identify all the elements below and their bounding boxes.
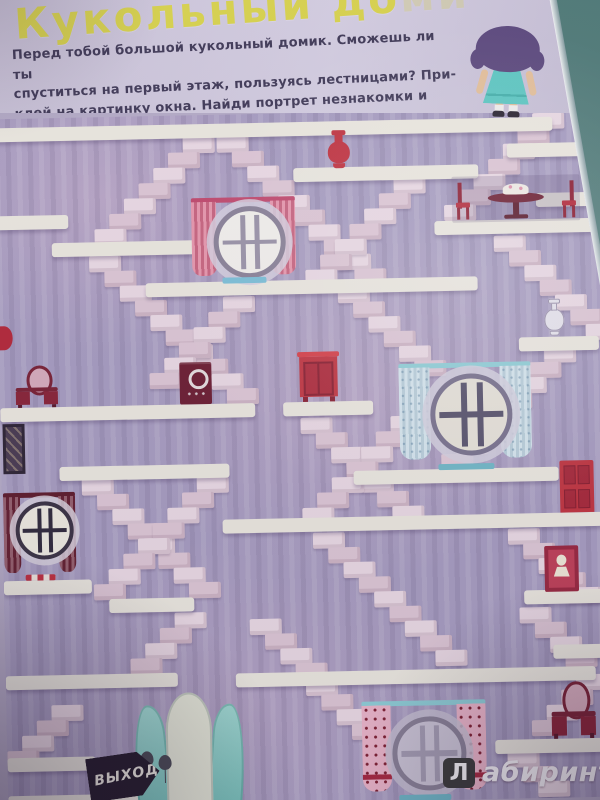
- staircase-step: [317, 492, 349, 509]
- wardrobe-cornice: [297, 351, 339, 357]
- staircase-step: [153, 523, 185, 540]
- exit-door-leaf-right: [208, 703, 249, 800]
- window-sill: [26, 574, 56, 581]
- staircase-step: [349, 223, 381, 240]
- vase-foot: [333, 163, 345, 168]
- staircase-step: [51, 705, 83, 722]
- vanity-drawer-left: [16, 392, 30, 406]
- floor: [283, 401, 373, 417]
- floor: [109, 597, 194, 613]
- vanity-foot-left: [554, 734, 558, 739]
- watermark-logo-badge: Л: [443, 758, 475, 788]
- staircase-step: [335, 239, 367, 256]
- red-door: [559, 460, 594, 513]
- floor: [7, 756, 95, 772]
- chair-leg: [563, 205, 566, 217]
- window-sill: [223, 277, 266, 284]
- staircase-step: [138, 183, 170, 200]
- floor: [223, 512, 600, 534]
- staircase-step: [149, 373, 181, 390]
- staircase-step: [193, 327, 225, 344]
- book-page: Кукольный доми Перед тобой большой кукол…: [0, 0, 600, 800]
- vanity-table-left: [15, 365, 58, 408]
- window-sill: [399, 794, 451, 800]
- staircase-step: [435, 650, 467, 667]
- door-panel: [563, 465, 575, 484]
- balloon-decoration: [158, 755, 171, 770]
- vanity-foot-right: [590, 733, 594, 738]
- staircase-step: [109, 568, 141, 585]
- toy-stove: [179, 362, 212, 405]
- doll-shoe-left: [492, 111, 504, 117]
- round-window-maroon-curtains: [2, 492, 78, 582]
- window-pane-bar: [440, 411, 503, 418]
- cake: [503, 183, 529, 195]
- dollhouse-maze: ВЫХОД: [0, 107, 600, 800]
- round-window-pink-curtains: [189, 196, 299, 284]
- wardrobe-foot-left: [303, 397, 308, 402]
- staircase-step: [123, 553, 155, 570]
- sconce-body: [0, 326, 13, 350]
- white-vase: [543, 298, 566, 336]
- floor: [0, 117, 552, 143]
- staircase-step: [364, 208, 396, 225]
- staircase-step: [160, 627, 192, 644]
- staircase-step: [361, 446, 393, 463]
- vase-mouth: [548, 299, 560, 305]
- vanity-table-bottom-right: [551, 681, 596, 739]
- doll-arm-left: [475, 69, 489, 95]
- floor: [4, 579, 92, 595]
- table-pedestal: [513, 200, 519, 215]
- table-base: [504, 214, 528, 219]
- staircase-step: [124, 198, 156, 215]
- chair-leg: [572, 205, 575, 217]
- picture-strings: [6, 427, 23, 471]
- floor: [495, 738, 600, 754]
- doll-shoe-right: [507, 111, 519, 117]
- stove-knobs: [186, 392, 206, 395]
- staircase-step: [182, 137, 214, 154]
- window-sill: [439, 463, 494, 470]
- staircase-step: [379, 193, 411, 210]
- lady-portrait: [544, 545, 579, 592]
- labirint-watermark: Л абиринт.ру: [443, 757, 600, 788]
- staircase-step: [138, 538, 170, 555]
- red-wardrobe: [299, 351, 338, 402]
- staircase-step: [208, 311, 240, 328]
- staircase-step: [179, 342, 211, 359]
- staircase-step: [37, 720, 69, 737]
- staircase-step: [174, 612, 206, 629]
- vase-mouth: [331, 130, 346, 136]
- exit-door-center-panel: [165, 692, 213, 800]
- round-window-blue-curtains: [395, 361, 535, 471]
- dark-framed-picture: [2, 424, 25, 474]
- wardrobe-foot-right: [330, 396, 335, 401]
- staircase-step: [168, 152, 200, 169]
- staircase-step: [197, 477, 229, 494]
- title-text-cropped: ми: [398, 0, 471, 22]
- staircase-step: [227, 388, 259, 405]
- window-pane-bar: [401, 750, 457, 756]
- watermark-text: абиринт.ру: [482, 757, 600, 788]
- floor: [519, 336, 599, 352]
- wardrobe-door-right: [317, 361, 334, 395]
- vanity-drawer-right: [581, 716, 596, 735]
- staircase-step: [167, 507, 199, 524]
- door-panel: [578, 489, 590, 508]
- vase-foot: [550, 331, 560, 336]
- vase-body: [544, 309, 564, 331]
- staircase-step: [488, 158, 520, 175]
- vanity-drawer-left: [552, 717, 567, 736]
- chair-leg: [466, 207, 469, 219]
- vanity-foot-right: [52, 404, 56, 407]
- door-panel: [577, 465, 589, 484]
- door-panel: [564, 489, 576, 508]
- photo-backdrop: Кукольный доми Перед тобой большой кукол…: [0, 0, 600, 800]
- vanity-foot-left: [18, 405, 22, 408]
- staircase-step: [153, 167, 185, 184]
- staircase-step: [223, 296, 255, 313]
- staircase-step: [109, 213, 141, 230]
- floor: [236, 666, 596, 688]
- curtain-left: [361, 705, 393, 792]
- doll-arm-right: [525, 70, 537, 96]
- vase-neck: [335, 134, 342, 142]
- floor: [52, 240, 202, 257]
- window-pane-bar: [23, 528, 67, 533]
- curtain-left: [398, 367, 432, 460]
- chair-leg: [457, 208, 460, 220]
- dining-table-with-cake-and-chairs: [451, 174, 580, 223]
- staircase-step: [182, 492, 214, 509]
- floor: [0, 215, 68, 231]
- floor: [553, 644, 600, 659]
- staircase-step: [145, 643, 177, 660]
- staircase-step: [320, 254, 352, 271]
- vase-neck: [551, 303, 557, 311]
- doll-hair: [475, 25, 541, 73]
- staircase-step: [189, 582, 221, 599]
- red-wall-vase: [0, 321, 13, 355]
- staircase-step: [529, 362, 561, 379]
- floor: [6, 673, 178, 691]
- vase-body: [327, 140, 350, 163]
- staircase-step: [22, 735, 54, 752]
- doll-illustration: [464, 25, 549, 118]
- red-vase: [325, 130, 352, 170]
- window-pane-bar: [222, 239, 277, 245]
